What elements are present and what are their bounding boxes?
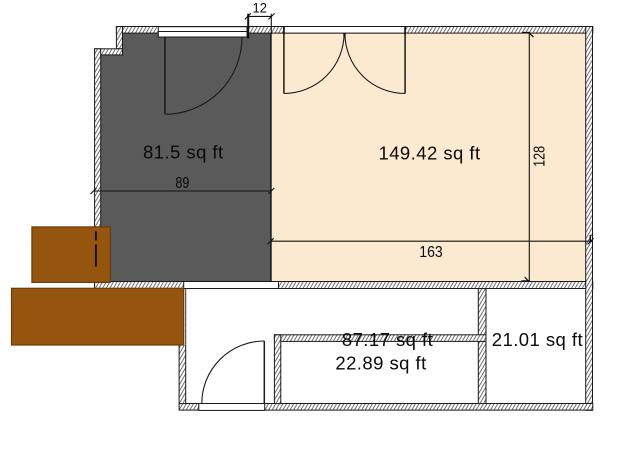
svg-text:81.5 sq ft: 81.5 sq ft: [143, 142, 224, 163]
svg-text:128: 128: [532, 146, 549, 167]
svg-text:21.01 sq ft: 21.01 sq ft: [492, 329, 583, 350]
svg-text:12: 12: [253, 1, 268, 16]
svg-text:89: 89: [175, 175, 189, 192]
svg-text:22.89 sq ft: 22.89 sq ft: [335, 352, 426, 373]
svg-text:87.17 sq ft: 87.17 sq ft: [342, 329, 433, 350]
svg-text:163: 163: [419, 244, 443, 261]
svg-text:149.42 sq ft: 149.42 sq ft: [378, 143, 480, 164]
